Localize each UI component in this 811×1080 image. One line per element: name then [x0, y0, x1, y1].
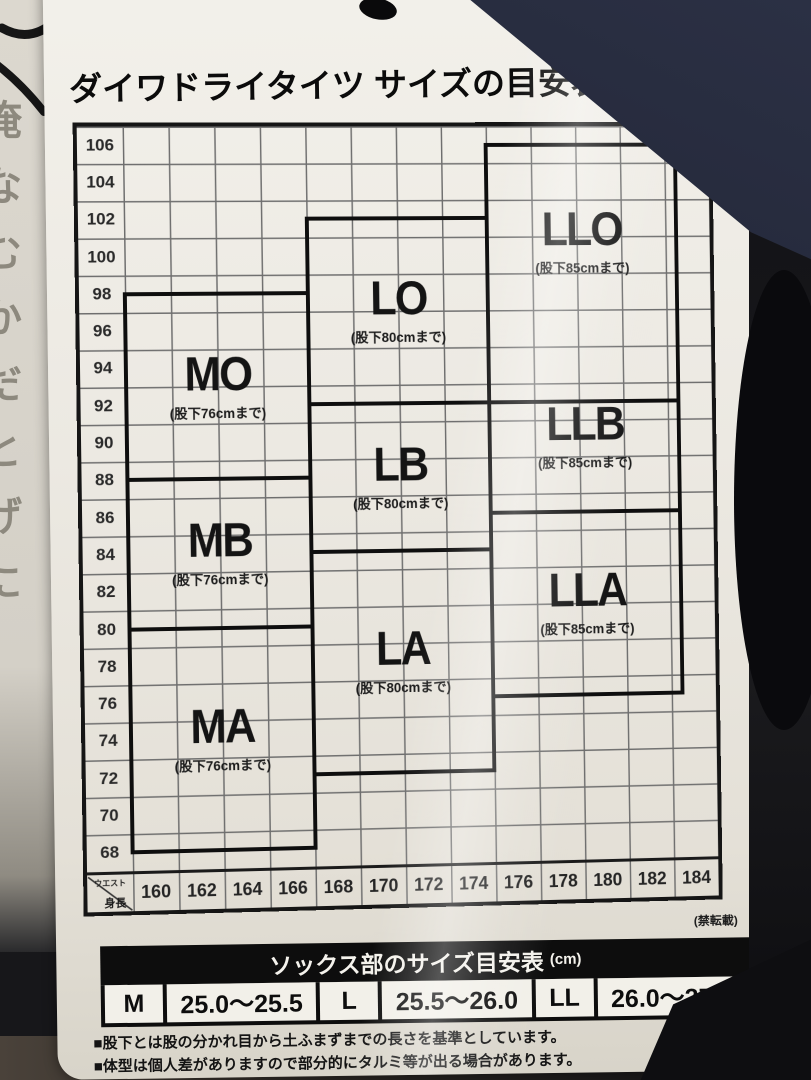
height-tick-label: 160 [133, 873, 179, 911]
waist-tick-label: 78 [84, 648, 130, 686]
size-region-llo: LLO(股下85cmまで) [484, 142, 681, 404]
size-inseam-note: (股下80cmまで) [356, 676, 452, 698]
size-name: LA [376, 626, 431, 674]
waist-tick-label: 100 [78, 238, 124, 276]
waist-tick-label: 72 [85, 760, 131, 798]
waist-tick-label: 76 [84, 685, 130, 723]
height-tick-label: 174 [451, 865, 496, 903]
size-inseam-note: (股下76cmまで) [175, 753, 272, 775]
size-inseam-note: (股下85cmまで) [538, 451, 632, 472]
socks-size-table: ソックス部のサイズ目安表 (cm) M25.0〜25.5L25.5〜26.0LL… [100, 937, 751, 1027]
sock-size-label: LL [535, 978, 594, 1017]
height-tick-label: 170 [361, 867, 407, 905]
size-region-la: LA(股下80cmまで) [309, 547, 496, 776]
size-region-mo: MO(股下76cmまで) [123, 291, 312, 482]
height-tick-label: 176 [496, 864, 541, 902]
waist-tick-label: 104 [77, 164, 123, 201]
sock-size-range: 25.0〜25.5 [167, 982, 317, 1022]
height-tick-label: 180 [585, 862, 630, 900]
waist-axis-label: ウエスト [94, 878, 126, 888]
neighbor-tag-glyph: げ [0, 488, 22, 554]
neighbor-tag-glyph: と [0, 422, 22, 488]
height-tick-label: 172 [406, 866, 452, 904]
waist-tick-label: 102 [78, 201, 124, 238]
no-reproduction-note: (禁転載) [438, 911, 738, 932]
height-axis-label: 身長 [104, 895, 127, 910]
punch-hole-icon [357, 0, 398, 23]
socks-table-title: ソックス部のサイズ目安表 [269, 943, 544, 981]
waist-tick-label: 90 [81, 424, 127, 462]
socks-table-row: M25.0〜25.5L25.5〜26.0LL26.0〜27.0 [101, 976, 752, 1027]
waist-tick-label: 68 [87, 834, 133, 872]
sock-size-label: L [320, 981, 379, 1020]
sock-size-range: 25.5〜26.0 [382, 979, 532, 1019]
size-chart: 1061041021009896949290888684828078767472… [73, 122, 723, 917]
neighbor-tag-glyph: な [0, 158, 22, 224]
size-region-lb: LB(股下80cmまで) [307, 400, 493, 554]
waist-tick-label: 94 [80, 350, 126, 388]
size-inseam-note: (股下80cmまで) [353, 492, 449, 513]
neighbor-tag-glyph: だ [0, 356, 22, 422]
size-name: MA [190, 703, 255, 752]
waist-tick-label: 82 [83, 573, 129, 611]
size-inseam-note: (股下76cmまで) [172, 568, 269, 589]
size-region-lla: LLA(股下85cmまで) [489, 508, 685, 699]
height-tick-label: 178 [541, 863, 586, 901]
size-name: MO [184, 351, 251, 399]
size-inseam-note: (股下85cmまで) [535, 256, 629, 276]
neighbor-tag-text: 俺なむかだとげに [0, 92, 22, 620]
axis-corner-cell: ウエスト 身長 [87, 871, 133, 912]
size-name: LLA [548, 567, 626, 615]
waist-tick-label: 92 [80, 387, 126, 425]
height-tick-label: 162 [179, 872, 225, 910]
size-inseam-note: (股下80cmまで) [351, 326, 447, 347]
neighbor-tag-glyph: む [0, 224, 22, 290]
size-chart-tag: ダイワドライタイツ サイズの目安表(単位:cm) 106104102100989… [42, 0, 770, 1080]
waist-tick-label: 86 [82, 499, 128, 537]
chart-grid: MO(股下76cmまで)MB(股下76cmまで)MA(股下76cmまで)LO(股… [122, 126, 718, 871]
waist-tick-label: 80 [83, 611, 129, 649]
height-tick-label: 182 [630, 860, 675, 897]
size-inseam-note: (股下85cmまで) [540, 617, 634, 638]
size-inseam-note: (股下76cmまで) [170, 401, 267, 422]
size-name: LLB [546, 401, 624, 449]
neighbor-tag-glyph: か [0, 290, 22, 356]
waist-tick-label: 98 [79, 275, 125, 313]
size-name: LB [373, 441, 428, 489]
title-text: ダイワドライタイツ サイズの目安表 [69, 63, 604, 107]
waist-tick-label: 84 [82, 536, 128, 574]
size-name: MB [187, 518, 252, 567]
height-tick-label: 166 [270, 870, 316, 908]
socks-table-unit: (cm) [550, 951, 582, 968]
size-name: LO [369, 275, 426, 323]
waist-tick-label: 74 [85, 722, 131, 760]
waist-tick-label: 106 [77, 127, 123, 164]
size-name: LLO [542, 206, 623, 254]
sock-size-label: M [105, 984, 164, 1023]
height-tick-label: 184 [674, 859, 719, 896]
height-tick-label: 164 [225, 871, 271, 909]
size-region-lo: LO(股下80cmまで) [304, 216, 491, 406]
waist-tick-label: 70 [86, 797, 132, 835]
size-region-mb: MB(股下76cmまで) [125, 476, 314, 631]
neighbor-tag-glyph: に [0, 554, 22, 620]
waist-tick-label: 96 [79, 313, 125, 351]
size-region-ma: MA(股下76cmまで) [127, 624, 317, 855]
waist-tick-label: 88 [81, 462, 127, 500]
height-tick-label: 168 [316, 868, 362, 906]
size-region-llb: LLB(股下85cmまで) [487, 398, 682, 514]
